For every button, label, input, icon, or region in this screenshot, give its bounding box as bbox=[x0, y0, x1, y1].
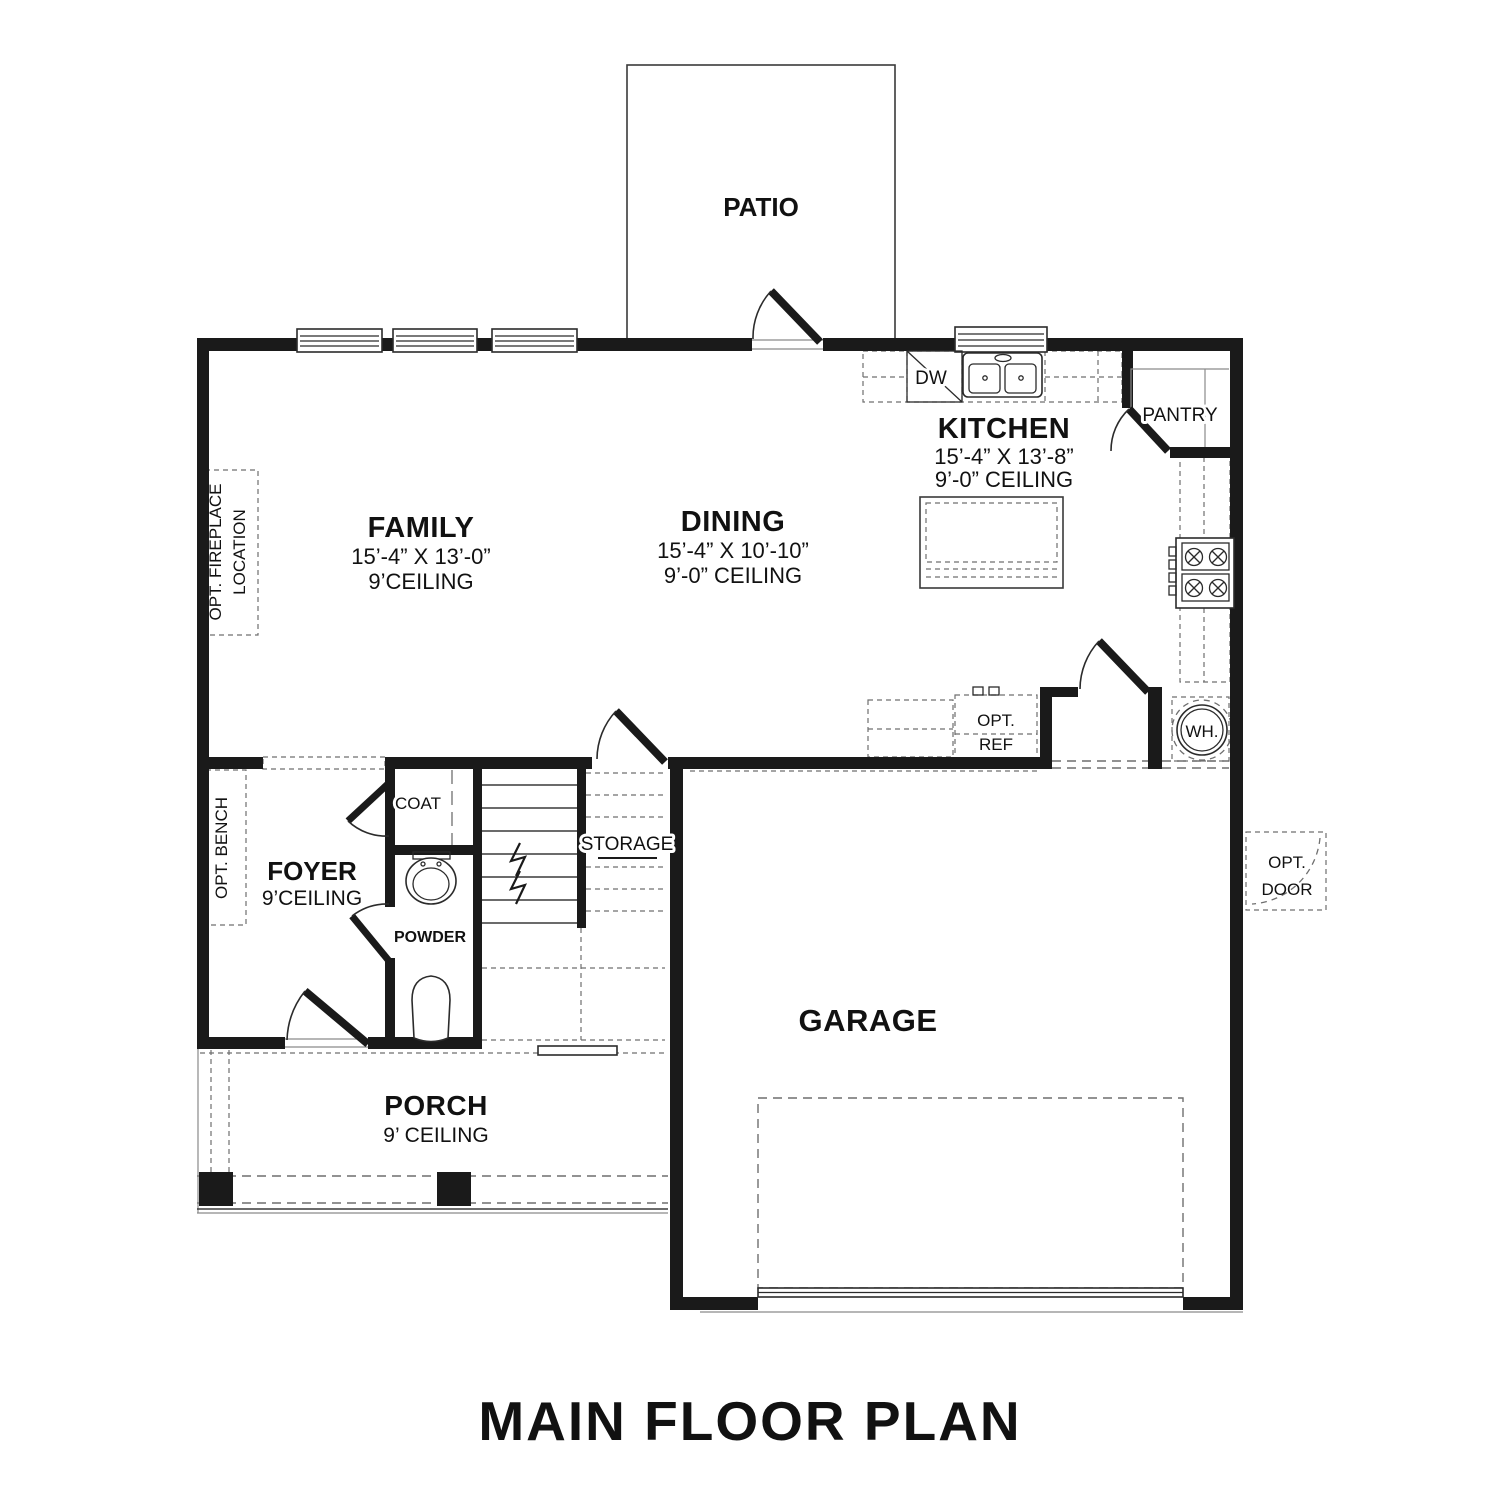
front-door-opening bbox=[285, 1037, 368, 1049]
toilet bbox=[412, 976, 450, 1042]
family-window bbox=[492, 329, 577, 352]
coat-label: COAT bbox=[395, 794, 441, 813]
storage-door bbox=[597, 711, 665, 762]
floor-plan-page: PATIO FAMILY 15’-4” X 13’-0” 9’CEILING D… bbox=[0, 0, 1500, 1500]
front-door bbox=[287, 991, 368, 1044]
opt-ref-label-2: REF bbox=[979, 735, 1013, 754]
storage-label: STORAGE bbox=[581, 834, 674, 855]
dining-ceiling: 9’-0” CEILING bbox=[664, 563, 802, 588]
patio-door bbox=[753, 291, 820, 342]
garage-door-swing bbox=[758, 1098, 1183, 1288]
porch-post bbox=[437, 1172, 471, 1206]
kitchen-dimensions: 15’-4” X 13’-8” bbox=[934, 444, 1073, 469]
cased-opening bbox=[263, 757, 385, 769]
family-window bbox=[393, 329, 477, 352]
walls bbox=[197, 338, 1243, 1310]
ref-connector bbox=[973, 687, 983, 695]
opt-bench-label: OPT. BENCH bbox=[212, 797, 231, 899]
family-window bbox=[297, 329, 382, 352]
understair-storage-dashes bbox=[482, 773, 665, 1040]
opt-fireplace-label-2: LOCATION bbox=[230, 509, 249, 595]
stair-break-mark bbox=[511, 843, 525, 876]
range-knob bbox=[1169, 547, 1176, 556]
opt-door-label-1: OPT. bbox=[1268, 853, 1306, 872]
kitchen-label: KITCHEN bbox=[938, 413, 1070, 445]
kitchen-window bbox=[955, 327, 1047, 352]
floor-plan-drawing: PATIO FAMILY 15’-4” X 13’-0” 9’CEILING D… bbox=[0, 0, 1500, 1500]
coat-door bbox=[348, 783, 389, 836]
page-title: MAIN FLOOR PLAN bbox=[478, 1390, 1021, 1452]
porch-ceiling: 9’ CEILING bbox=[383, 1124, 488, 1147]
patio-label: PATIO bbox=[723, 192, 799, 222]
foyer-ceiling: 9’CEILING bbox=[262, 887, 362, 910]
kitchen-island bbox=[920, 497, 1063, 588]
powder-door bbox=[352, 904, 389, 961]
dining-dimensions: 15’-4” X 10’-10” bbox=[657, 538, 809, 563]
foyer-cased-opening bbox=[263, 757, 385, 769]
staircase bbox=[482, 785, 577, 923]
foyer-label: FOYER bbox=[267, 856, 357, 886]
family-label: FAMILY bbox=[368, 512, 475, 544]
dining-label: DINING bbox=[681, 506, 786, 538]
garage-door bbox=[700, 1288, 1243, 1312]
porch-step bbox=[538, 1046, 617, 1055]
opt-fireplace-label-1: OPT. FIREPLACE bbox=[206, 484, 225, 621]
powder-label: POWDER bbox=[394, 929, 466, 946]
stair-break-mark bbox=[511, 871, 525, 904]
patio-door-opening bbox=[752, 338, 823, 351]
porch-post bbox=[199, 1172, 233, 1206]
range bbox=[1169, 538, 1234, 608]
kitchen-sink bbox=[963, 353, 1042, 397]
opt-ref-label-1: OPT. bbox=[977, 711, 1015, 730]
dishwasher-label: DW bbox=[915, 368, 947, 389]
family-ceiling: 9’CEILING bbox=[368, 569, 473, 594]
garage-entry-door bbox=[1080, 641, 1148, 692]
range-knob bbox=[1169, 586, 1176, 595]
porch-label: PORCH bbox=[384, 1090, 488, 1121]
pantry-label: PANTRY bbox=[1142, 405, 1218, 426]
ref-connector bbox=[989, 687, 999, 695]
range-knob bbox=[1169, 560, 1176, 569]
garage-label: GARAGE bbox=[798, 1003, 937, 1038]
labels: PATIO FAMILY 15’-4” X 13’-0” 9’CEILING D… bbox=[206, 192, 1313, 1452]
opt-door-label-2: DOOR bbox=[1262, 880, 1313, 899]
water-heater-label: WH. bbox=[1185, 722, 1218, 741]
range-knob bbox=[1169, 573, 1176, 582]
family-dimensions: 15’-4” X 13’-0” bbox=[351, 544, 490, 569]
kitchen-ceiling: 9’-0” CEILING bbox=[935, 467, 1073, 492]
